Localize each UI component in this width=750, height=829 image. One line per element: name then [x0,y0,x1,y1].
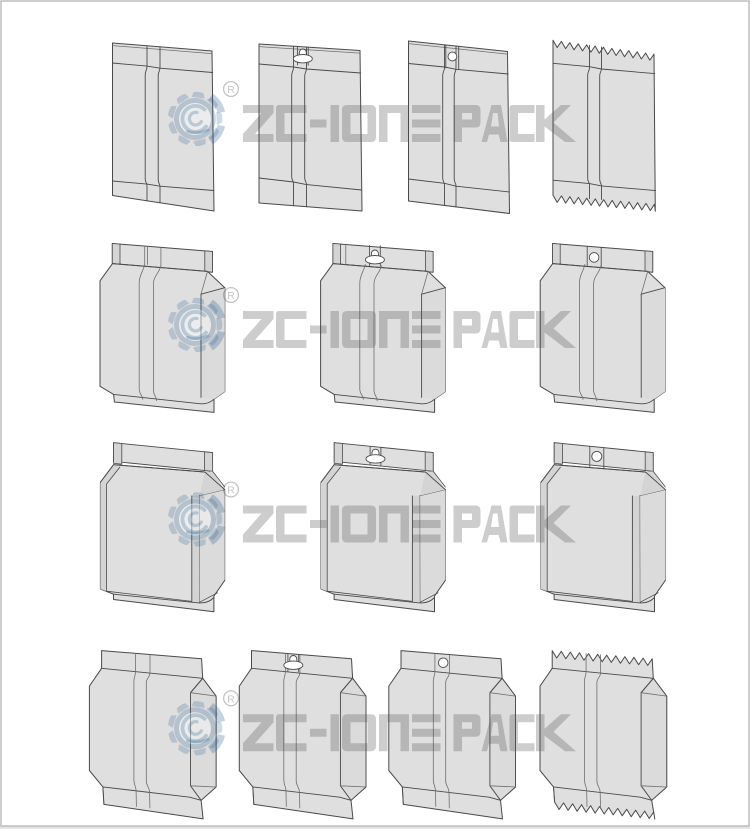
svg-text:R: R [227,485,235,497]
svg-text:R: R [227,290,235,302]
svg-text:R: R [227,693,235,705]
svg-text:R: R [227,84,235,96]
